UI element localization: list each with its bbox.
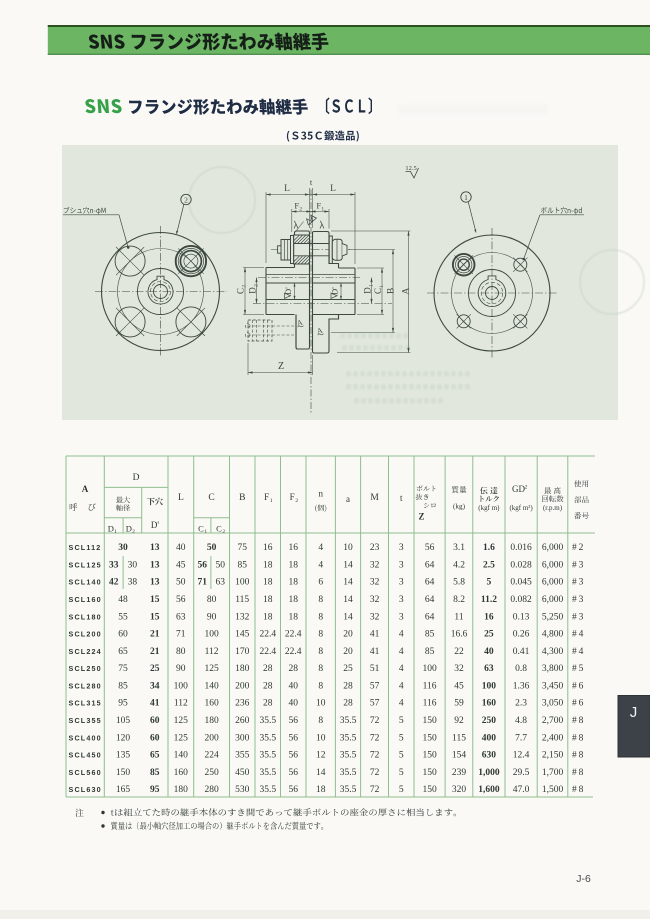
svg-text:B: B [239,493,245,503]
svg-text:35.5: 35.5 [259,733,276,743]
svg-text:5: 5 [399,785,404,795]
svg-text:40: 40 [288,681,298,691]
svg-text:SCL355: SCL355 [69,716,102,725]
svg-text:18: 18 [288,560,298,570]
svg-text:28: 28 [263,699,273,709]
svg-text:116: 116 [423,681,437,691]
svg-text:85: 85 [150,768,160,778]
svg-text:57: 57 [370,681,380,691]
svg-text:355: 355 [235,751,250,761]
svg-text:85: 85 [237,560,247,570]
svg-text:SCL112: SCL112 [69,543,102,552]
svg-text:40: 40 [176,543,186,553]
svg-text:41: 41 [150,699,160,709]
svg-text:4: 4 [399,647,404,657]
svg-text:32: 32 [370,595,380,605]
svg-text:72: 72 [370,733,380,743]
svg-text:1,700: 1,700 [542,768,564,778]
svg-text:# 8: # 8 [572,716,584,726]
svg-text:35.5: 35.5 [259,768,276,778]
svg-text:# 8: # 8 [572,751,584,761]
svg-text:3: 3 [399,612,404,622]
svg-text:47.0: 47.0 [513,785,530,795]
svg-text:0.13: 0.13 [513,612,530,622]
svg-text:n: n [318,489,323,499]
svg-text:28: 28 [343,681,353,691]
svg-text:32: 32 [454,664,464,674]
svg-text:18: 18 [288,612,298,622]
svg-text:1,000: 1,000 [478,768,500,778]
svg-text:L: L [178,493,184,503]
svg-text:72: 72 [370,785,380,795]
svg-text:2: 2 [254,284,260,287]
svg-text:Z: Z [278,361,284,372]
svg-text:75: 75 [118,664,128,674]
svg-text:112: 112 [174,699,188,709]
svg-text:22.4: 22.4 [259,647,276,657]
svg-text:72: 72 [370,716,380,726]
svg-text:45: 45 [454,681,464,691]
svg-text:# 3: # 3 [572,560,584,570]
svg-text:400: 400 [482,733,497,743]
svg-text:8: 8 [318,595,323,605]
svg-text:# 6: # 6 [572,681,584,691]
svg-text:239: 239 [452,768,467,778]
svg-text:3.1: 3.1 [453,543,465,553]
svg-text:200: 200 [204,733,219,743]
svg-text:14: 14 [343,578,353,588]
svg-text:2,150: 2,150 [542,751,564,761]
svg-text:7.7: 7.7 [515,733,527,743]
svg-text:170: 170 [235,647,250,657]
svg-text:32: 32 [370,560,380,570]
svg-text:115: 115 [235,595,249,605]
svg-text:3: 3 [399,578,404,588]
svg-text:14: 14 [316,768,326,778]
svg-text:28: 28 [343,699,353,709]
svg-text:56: 56 [288,716,298,726]
svg-text:150: 150 [422,785,437,795]
svg-text:72: 72 [370,768,380,778]
svg-text:4: 4 [399,681,404,691]
svg-text:60: 60 [150,716,160,726]
svg-text:85: 85 [425,630,435,640]
svg-text:56: 56 [198,560,208,570]
svg-text:18: 18 [263,578,273,588]
svg-text:8: 8 [318,630,323,640]
svg-text:0.016: 0.016 [510,543,532,553]
svg-text:140: 140 [174,751,189,761]
svg-text:D': D' [151,520,159,530]
svg-text:# 4: # 4 [572,647,584,657]
svg-text:630: 630 [482,751,497,761]
svg-text:1: 1 [379,285,385,288]
svg-text:95: 95 [118,699,128,709]
svg-text:18: 18 [288,578,298,588]
svg-text:0.045: 0.045 [510,578,532,588]
svg-text:64: 64 [425,560,435,570]
svg-text:16.6: 16.6 [451,630,468,640]
svg-text:250: 250 [204,768,219,778]
svg-text:(kgf m²): (kgf m²) [509,504,533,512]
svg-text:85: 85 [425,647,435,657]
svg-text:1: 1 [204,529,207,535]
svg-text:116: 116 [423,699,437,709]
svg-text:SCL160: SCL160 [69,595,102,604]
svg-text:71: 71 [176,630,186,640]
svg-text:29.5: 29.5 [513,768,530,778]
svg-text:SCL250: SCL250 [69,664,102,673]
svg-text:65: 65 [150,751,160,761]
svg-text:23: 23 [370,543,380,553]
svg-text:2.5: 2.5 [483,560,495,570]
svg-text:6,000: 6,000 [542,560,564,570]
svg-text:11: 11 [454,612,463,622]
svg-text:D: D [108,523,114,533]
svg-text:150: 150 [116,768,131,778]
svg-text:41: 41 [370,630,380,640]
svg-text:30: 30 [128,560,138,570]
svg-text:25: 25 [150,664,160,674]
svg-text:SCL180: SCL180 [69,612,102,621]
svg-text:4,800: 4,800 [542,630,564,640]
svg-text:4: 4 [399,699,404,709]
svg-text:280: 280 [204,785,219,795]
svg-text:56: 56 [288,768,298,778]
svg-text:1,600: 1,600 [478,785,500,795]
svg-text:160: 160 [482,699,497,709]
svg-text:16: 16 [288,543,298,553]
svg-text:90: 90 [176,664,186,674]
svg-text:13: 13 [150,560,160,570]
svg-text:530: 530 [235,785,250,795]
svg-text:J: J [630,704,638,721]
svg-text:75: 75 [237,543,247,553]
svg-text:55: 55 [118,612,128,622]
svg-text:C: C [236,288,246,294]
svg-text:100: 100 [235,578,250,588]
svg-text:0.082: 0.082 [510,595,532,605]
svg-text:40: 40 [288,699,298,709]
svg-text:1: 1 [114,529,117,535]
svg-text:224: 224 [204,751,219,761]
svg-text:100: 100 [482,681,497,691]
svg-text:35.5: 35.5 [340,768,357,778]
svg-text:250: 250 [482,716,497,726]
svg-text:0.26: 0.26 [513,630,530,640]
svg-text:22.4: 22.4 [285,630,302,640]
svg-text:14: 14 [343,595,353,605]
svg-text:150: 150 [422,768,437,778]
svg-text:33: 33 [109,560,119,570]
svg-text:85: 85 [118,681,128,691]
svg-text:10: 10 [316,699,326,709]
svg-text:C: C [373,288,383,294]
svg-text:# 5: # 5 [572,664,584,674]
svg-text:SCL400: SCL400 [69,733,102,742]
svg-text:56: 56 [425,543,435,553]
svg-text:1: 1 [270,498,273,504]
svg-text:72: 72 [370,751,380,761]
svg-text:28: 28 [288,664,298,674]
svg-text:2: 2 [299,207,302,213]
svg-text:2: 2 [184,196,188,205]
svg-text:51: 51 [370,664,380,674]
svg-text:14: 14 [343,560,353,570]
svg-text:4: 4 [399,664,404,674]
svg-text:A: A [82,484,89,494]
svg-text:4.8: 4.8 [515,716,527,726]
svg-text:180: 180 [174,785,189,795]
svg-text:60: 60 [150,733,160,743]
svg-text:80: 80 [207,595,217,605]
svg-text:28: 28 [263,681,273,691]
svg-text:5: 5 [399,751,404,761]
svg-text:63: 63 [484,664,494,674]
svg-text:63: 63 [176,612,186,622]
svg-text:M: M [370,493,379,503]
svg-text:2: 2 [222,529,225,535]
svg-text:15: 15 [150,612,160,622]
svg-text:32: 32 [370,578,380,588]
svg-text:5: 5 [399,716,404,726]
svg-text:18: 18 [263,595,273,605]
svg-text:120: 120 [116,733,131,743]
svg-text:(r.p.m): (r.p.m) [543,504,563,512]
svg-text:18: 18 [316,785,326,795]
svg-text:1: 1 [369,284,375,287]
svg-text:64: 64 [425,612,435,622]
svg-text:13: 13 [150,543,160,553]
svg-text:57: 57 [370,699,380,709]
svg-text:SCL280: SCL280 [69,681,102,690]
svg-text:92: 92 [454,716,464,726]
svg-text:154: 154 [452,751,467,761]
svg-text:65: 65 [118,647,128,657]
svg-text:18: 18 [263,612,273,622]
svg-text:12: 12 [316,751,326,761]
svg-text:200: 200 [235,681,250,691]
svg-text:D: D [133,473,140,483]
svg-text:12.4: 12.4 [513,751,530,761]
svg-text:# 4: # 4 [572,630,584,640]
svg-text:140: 140 [204,681,219,691]
svg-text:160: 160 [204,699,219,709]
svg-text:16: 16 [484,612,494,622]
svg-text:18: 18 [263,560,273,570]
svg-text:3,800: 3,800 [542,664,564,674]
svg-text:42: 42 [109,578,119,588]
svg-text:4: 4 [318,560,323,570]
svg-text:300: 300 [235,733,250,743]
svg-text:2: 2 [525,485,528,491]
svg-text:# 2: # 2 [572,543,584,553]
svg-text:25: 25 [484,630,494,640]
svg-text:# 6: # 6 [572,699,584,709]
svg-text:2: 2 [132,529,135,535]
svg-text:180: 180 [235,664,250,674]
svg-text:8: 8 [318,664,323,674]
svg-text:45: 45 [176,560,186,570]
svg-text:(kg): (kg) [453,503,466,511]
svg-text:112: 112 [205,647,219,657]
svg-text:41: 41 [370,647,380,657]
svg-text:8: 8 [318,681,323,691]
svg-text:56: 56 [288,785,298,795]
svg-text:35.5: 35.5 [340,733,357,743]
svg-text:50: 50 [207,543,217,553]
svg-text:30: 30 [118,543,128,553]
svg-text:260: 260 [235,716,250,726]
svg-text:8.2: 8.2 [453,595,465,605]
svg-text:4: 4 [399,630,404,640]
svg-text:3: 3 [399,595,404,605]
svg-text:22.4: 22.4 [259,630,276,640]
svg-text:35.5: 35.5 [340,785,357,795]
svg-text:C: C [198,523,204,533]
svg-text:0.028: 0.028 [510,560,532,570]
svg-text:150: 150 [422,716,437,726]
svg-text:14: 14 [343,612,353,622]
svg-text:38: 38 [128,578,138,588]
svg-text:165: 165 [116,785,131,795]
svg-text:C: C [208,493,214,503]
svg-text:4.2: 4.2 [453,560,465,570]
svg-text:D: D [126,523,132,533]
svg-text:21: 21 [150,647,160,657]
svg-text:64: 64 [425,595,435,605]
svg-text:0.8: 0.8 [515,664,527,674]
svg-text:J-6: J-6 [576,873,591,885]
svg-text:3,450: 3,450 [542,681,564,691]
svg-text:56: 56 [288,733,298,743]
svg-text:# 3: # 3 [572,612,584,622]
svg-text:1,500: 1,500 [542,785,564,795]
svg-text:# 8: # 8 [572,733,584,743]
svg-text:SCL200: SCL200 [69,630,102,639]
svg-text:22.4: 22.4 [285,647,302,657]
svg-text:20: 20 [343,630,353,640]
svg-text:6,000: 6,000 [542,578,564,588]
svg-text:SCL315: SCL315 [69,699,102,708]
svg-text:Z: Z [419,512,425,522]
svg-text:L: L [330,184,336,194]
svg-text:# 8: # 8 [572,785,584,795]
svg-text:2,700: 2,700 [542,716,564,726]
svg-text:5: 5 [487,578,492,588]
svg-text:132: 132 [235,612,250,622]
svg-text:56: 56 [288,751,298,761]
svg-text:13: 13 [150,578,160,588]
svg-text:0.41: 0.41 [513,647,530,657]
svg-text:56: 56 [176,595,186,605]
svg-text:320: 320 [452,785,467,795]
svg-text:6,000: 6,000 [542,595,564,605]
svg-text:90: 90 [207,612,217,622]
svg-text:SCL125: SCL125 [69,560,102,569]
svg-text:25: 25 [343,664,353,674]
svg-text:a: a [346,494,350,504]
svg-text:5,250: 5,250 [542,612,564,622]
svg-text:B: B [387,288,397,294]
svg-text:60: 60 [118,630,128,640]
svg-text:2: 2 [295,498,298,504]
svg-text:115: 115 [452,733,466,743]
svg-text:# 8: # 8 [572,768,584,778]
svg-text:16: 16 [263,543,273,553]
svg-text:1.6: 1.6 [483,543,495,553]
svg-text:4: 4 [318,543,323,553]
svg-text:59: 59 [454,699,464,709]
svg-text:5: 5 [399,768,404,778]
svg-text:35.5: 35.5 [259,751,276,761]
svg-text:6: 6 [318,578,323,588]
svg-text:SCL450: SCL450 [69,751,102,760]
svg-text:F: F [264,492,269,502]
svg-text:C: C [216,523,222,533]
svg-text:SCL224: SCL224 [69,647,102,656]
svg-text:A: A [402,287,412,294]
svg-text:160: 160 [174,768,189,778]
svg-text:105: 105 [116,716,131,726]
svg-text:34: 34 [150,681,160,691]
svg-text:10: 10 [343,543,353,553]
svg-text:64: 64 [425,578,435,588]
svg-text:2: 2 [242,285,248,288]
svg-text:22: 22 [454,647,464,657]
svg-text:35.5: 35.5 [259,785,276,795]
svg-text:21: 21 [150,630,160,640]
svg-text:450: 450 [235,768,250,778]
svg-text:100: 100 [174,681,189,691]
svg-text:SCL630: SCL630 [69,785,102,794]
svg-text:GD: GD [512,484,525,494]
svg-text:50: 50 [215,560,225,570]
svg-text:1: 1 [464,193,468,202]
svg-text:3,050: 3,050 [542,699,564,709]
svg-text:125: 125 [204,664,219,674]
svg-text:8: 8 [318,612,323,622]
svg-text:6,000: 6,000 [542,543,564,553]
svg-text:4,300: 4,300 [542,647,564,657]
svg-text:20: 20 [343,647,353,657]
svg-text:135: 135 [116,751,131,761]
svg-text:100: 100 [204,630,219,640]
svg-text:12.5: 12.5 [405,165,416,172]
svg-text:145: 145 [235,630,250,640]
svg-text:5: 5 [399,733,404,743]
svg-text:150: 150 [422,733,437,743]
svg-text:10: 10 [316,733,326,743]
svg-text:100: 100 [422,664,437,674]
svg-text:# 3: # 3 [572,578,584,588]
svg-text:63: 63 [215,578,225,588]
svg-text:8: 8 [318,647,323,657]
svg-text:(kgf m): (kgf m) [478,504,500,512]
svg-text:SCL560: SCL560 [69,768,102,777]
svg-text:80: 80 [176,647,186,657]
svg-text:SCL140: SCL140 [69,578,102,587]
svg-text:35.5: 35.5 [340,716,357,726]
svg-text:2,400: 2,400 [542,733,564,743]
svg-text:1: 1 [321,207,324,213]
svg-text:35.5: 35.5 [340,751,357,761]
svg-text:11.2: 11.2 [481,595,497,605]
svg-text:1.36: 1.36 [513,681,530,691]
svg-text:50: 50 [176,578,186,588]
svg-text:125: 125 [174,733,189,743]
svg-text:28: 28 [263,664,273,674]
